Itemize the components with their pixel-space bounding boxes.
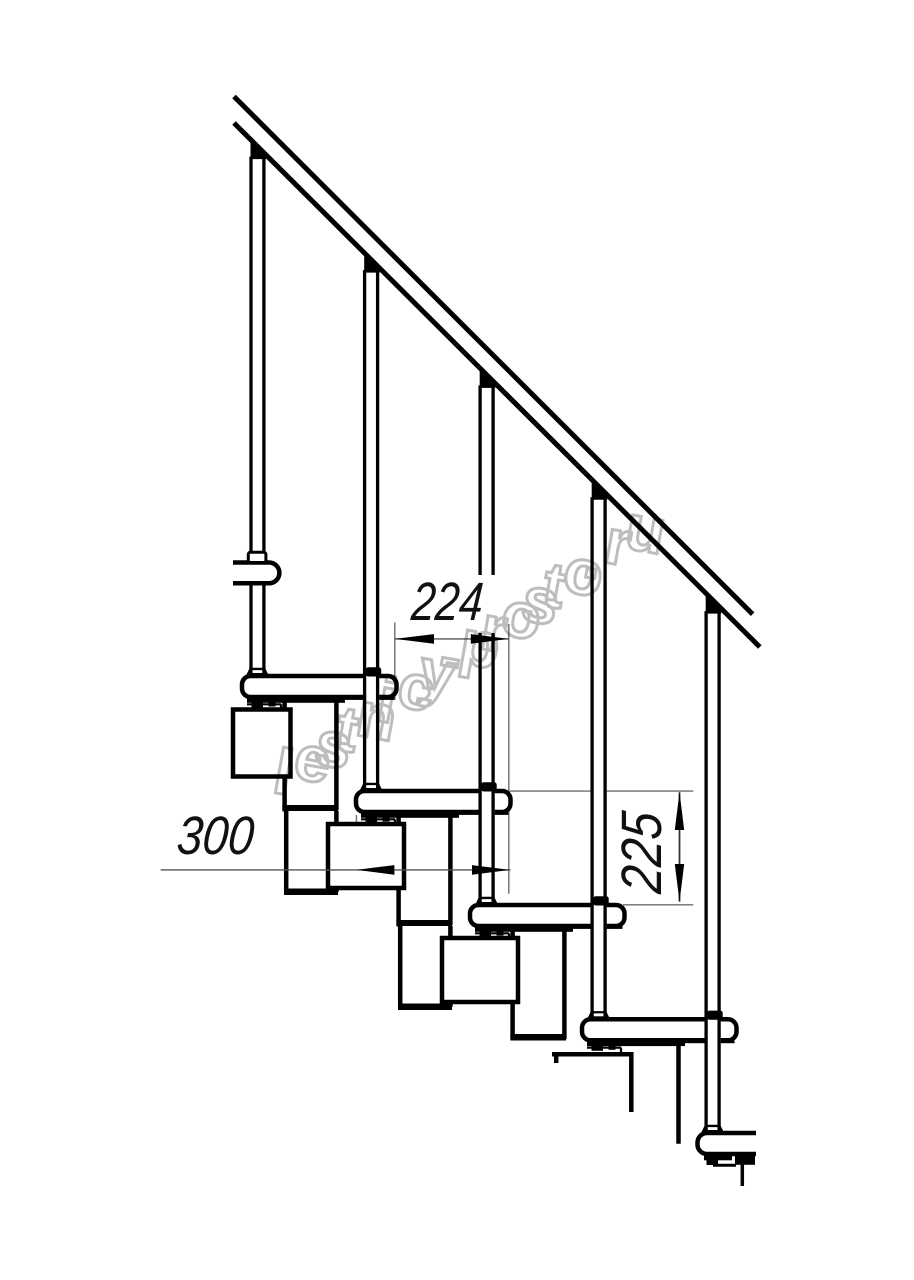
svg-text:225: 225: [610, 809, 673, 897]
svg-text:300: 300: [175, 806, 257, 866]
